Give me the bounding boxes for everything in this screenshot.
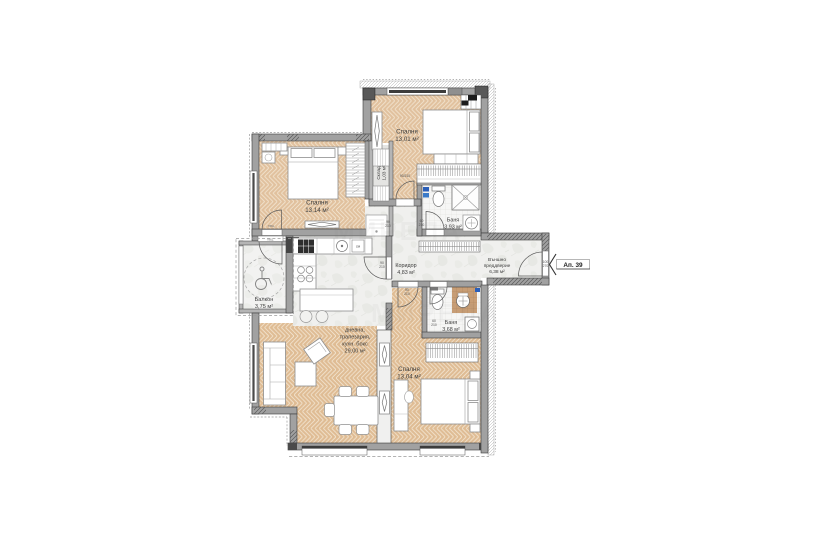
svg-text:210: 210 (404, 292, 410, 296)
svg-text:13,14 м²: 13,14 м² (305, 207, 329, 214)
svg-text:дневна,: дневна, (345, 328, 365, 334)
svg-text:13,04 м²: 13,04 м² (397, 374, 421, 381)
svg-text:90/210: 90/210 (400, 174, 410, 178)
svg-text:Склад: Склад (376, 166, 381, 180)
svg-text:Външно: Външно (488, 257, 506, 263)
svg-text:кухн. бокс: кухн. бокс (342, 342, 368, 348)
svg-text:трапезария,: трапезария, (340, 335, 371, 341)
svg-text:Спалня: Спалня (398, 366, 420, 373)
svg-text:29,00 м²: 29,00 м² (345, 349, 366, 355)
svg-text:ПВЦ: ПВЦ (267, 238, 274, 242)
svg-text:Спалня: Спалня (306, 200, 328, 207)
svg-text:Балкон: Балкон (255, 297, 274, 303)
svg-text:МИРЕЛА: МИРЕЛА (371, 298, 501, 328)
svg-text:13,01 м²: 13,01 м² (395, 136, 419, 143)
svg-text:4,83 м²: 4,83 м² (397, 270, 415, 276)
svg-text:Ап. 39: Ап. 39 (563, 262, 583, 269)
svg-text:3,75 м²: 3,75 м² (255, 304, 273, 310)
svg-text:Спалня: Спалня (396, 129, 418, 136)
svg-text:210: 210 (379, 265, 385, 269)
svg-text:1,03 м²: 1,03 м² (382, 165, 387, 180)
svg-text:Коридор: Коридор (395, 263, 416, 269)
svg-text:МИРЕЛА: МИРЕЛА (333, 216, 463, 246)
svg-text:преддверие: преддверие (484, 264, 511, 269)
svg-text:270: 270 (543, 264, 549, 268)
svg-text:6,38 м²: 6,38 м² (489, 269, 505, 275)
svg-text:ПВЦ: ПВЦ (268, 224, 275, 228)
